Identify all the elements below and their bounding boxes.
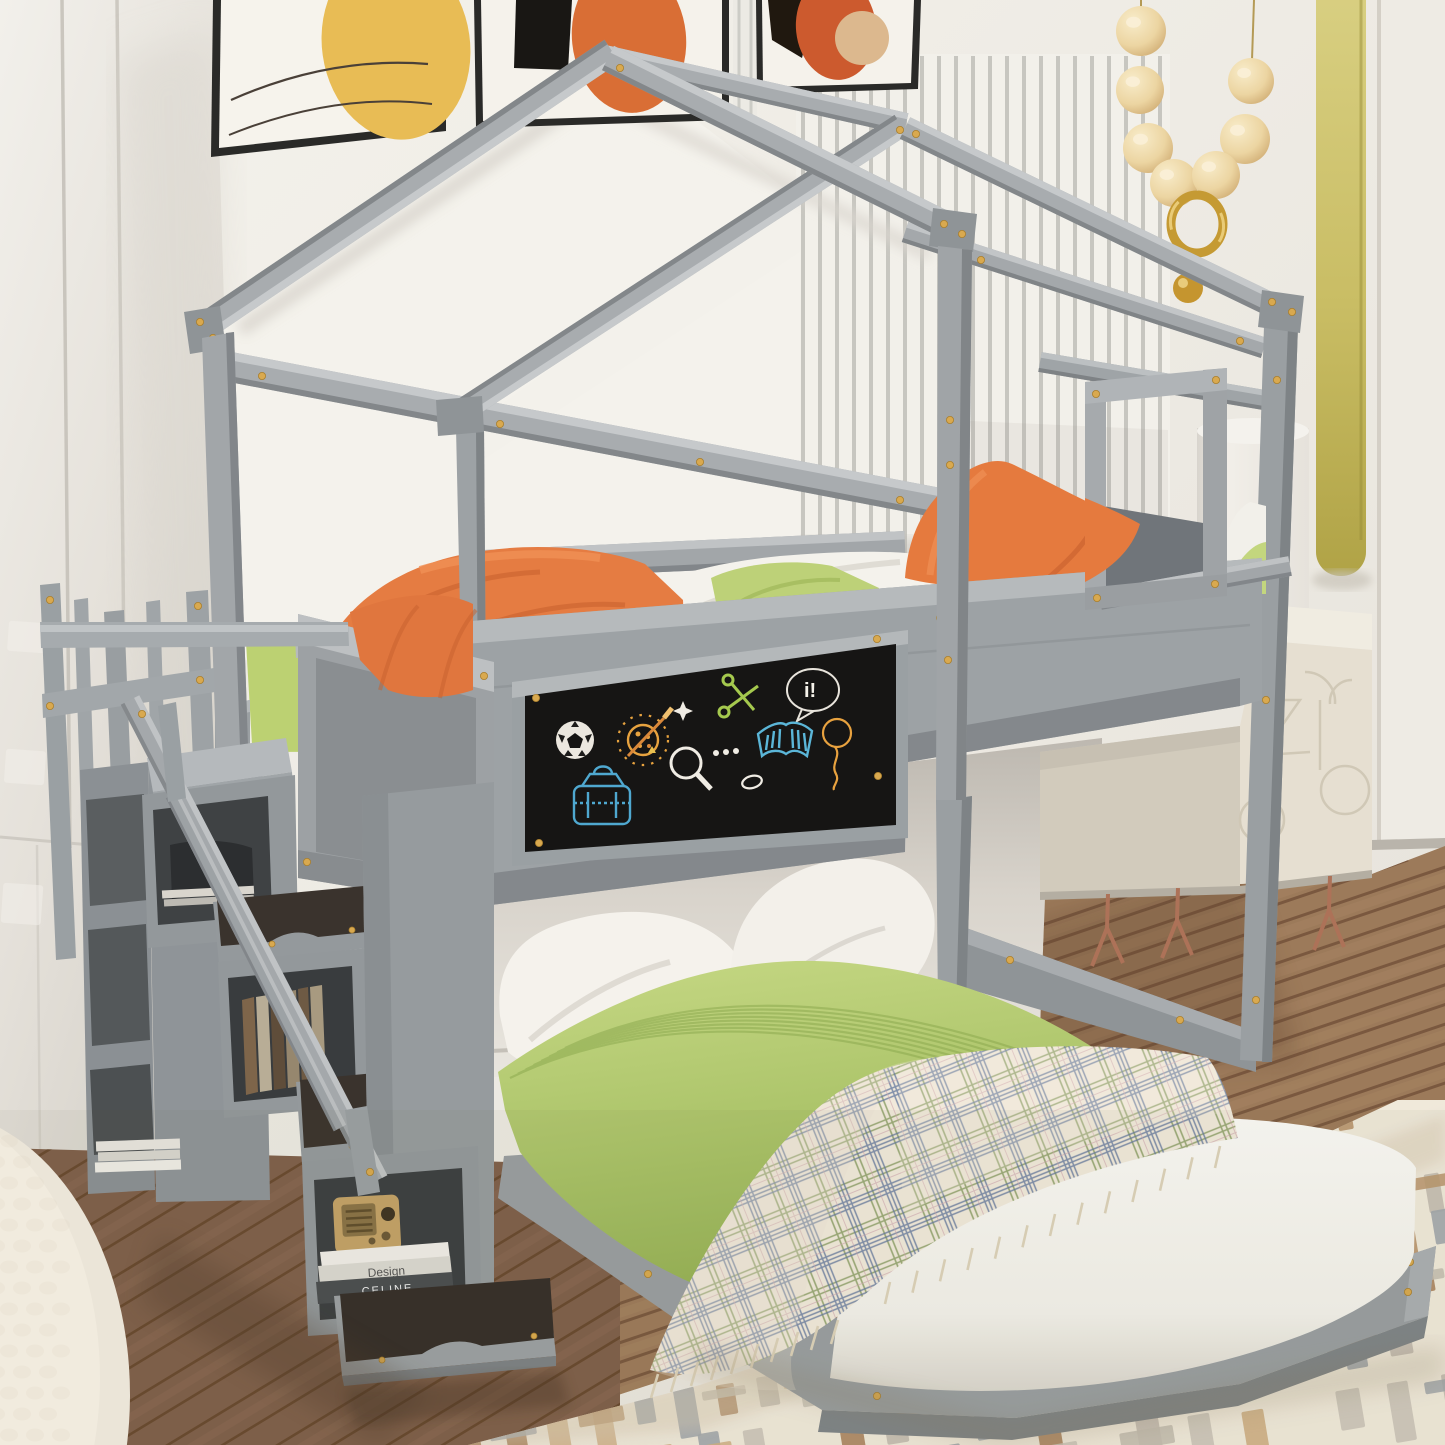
svg-text:i!: i! xyxy=(804,680,816,702)
